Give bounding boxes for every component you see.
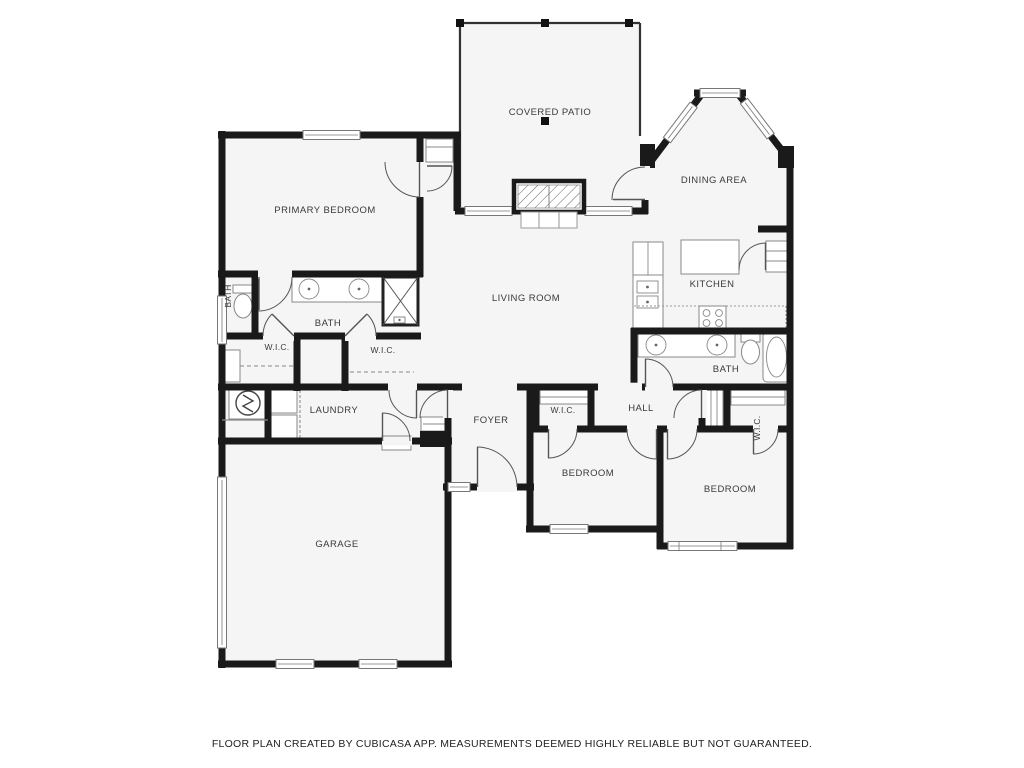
linen-closet-shelves: [705, 390, 723, 426]
room-label-wic-primary-left: W.I.C.: [265, 342, 290, 352]
room-label-garage: GARAGE: [315, 539, 358, 550]
room-label-bath-primary: BATH: [315, 318, 341, 329]
room-label-foyer: FOYER: [474, 415, 509, 426]
window: [303, 131, 360, 140]
room-label-kitchen: KITCHEN: [690, 279, 735, 290]
room-label-bedroom-left: BEDROOM: [562, 468, 614, 479]
room-label-wic-primary-right: W.I.C.: [371, 345, 396, 355]
window: [668, 542, 737, 551]
room-label-covered-patio: COVERED PATIO: [509, 107, 592, 118]
window: [218, 477, 227, 648]
refrigerator-icon: [633, 242, 663, 275]
toilet-icon: [741, 333, 760, 364]
foyer-floor: [448, 387, 530, 487]
fireplace-icon: [514, 181, 584, 228]
floor-plan-page: COVERED PATIO DINING AREA PRIMARY BEDROO…: [0, 0, 1024, 768]
room-label-bath-hall: BATH: [713, 364, 739, 375]
cooktop-icon: [699, 306, 726, 330]
window: [465, 207, 512, 216]
window: [448, 483, 470, 492]
room-label-wic-bedroom-right: W.I.C.: [752, 416, 762, 441]
room-label-bath-wc: BATH: [223, 284, 233, 307]
window: [550, 525, 588, 534]
garage-floor: [222, 387, 452, 664]
kitchen-island: [681, 240, 739, 274]
window: [276, 660, 314, 669]
patio-post: [456, 19, 464, 27]
closet-shelf: [540, 390, 588, 404]
patio-post: [625, 19, 633, 27]
patio-post: [541, 117, 549, 125]
double-vanity-icon: [292, 277, 382, 302]
bay-corner: [640, 144, 655, 168]
room-label-laundry: LAUNDRY: [310, 405, 359, 416]
room-label-primary-bedroom: PRIMARY BEDROOM: [274, 205, 375, 216]
toilet-icon: [233, 285, 253, 318]
room-label-living-room: LIVING ROOM: [492, 293, 560, 304]
closet-shelf: [426, 139, 453, 162]
window: [700, 89, 740, 98]
attribution-text: FLOOR PLAN CREATED BY CUBICASA APP. MEAS…: [212, 738, 812, 750]
patio-post: [541, 19, 549, 27]
double-vanity-icon: [638, 333, 735, 357]
water-heater-icon: [229, 388, 268, 419]
bay-corner: [778, 146, 794, 168]
window: [359, 660, 397, 669]
closet-shelf: [731, 390, 785, 405]
floor-plan-canvas: COVERED PATIO DINING AREA PRIMARY BEDROO…: [0, 0, 1024, 768]
room-label-hall: HALL: [628, 403, 654, 414]
room-label-bedroom-right: BEDROOM: [704, 484, 756, 495]
bathtub-icon: [763, 332, 790, 382]
room-label-dining-area: DINING AREA: [681, 175, 747, 186]
window: [585, 207, 632, 216]
room-label-wic-hall: W.I.C.: [551, 405, 576, 415]
shower-icon: [383, 277, 418, 325]
